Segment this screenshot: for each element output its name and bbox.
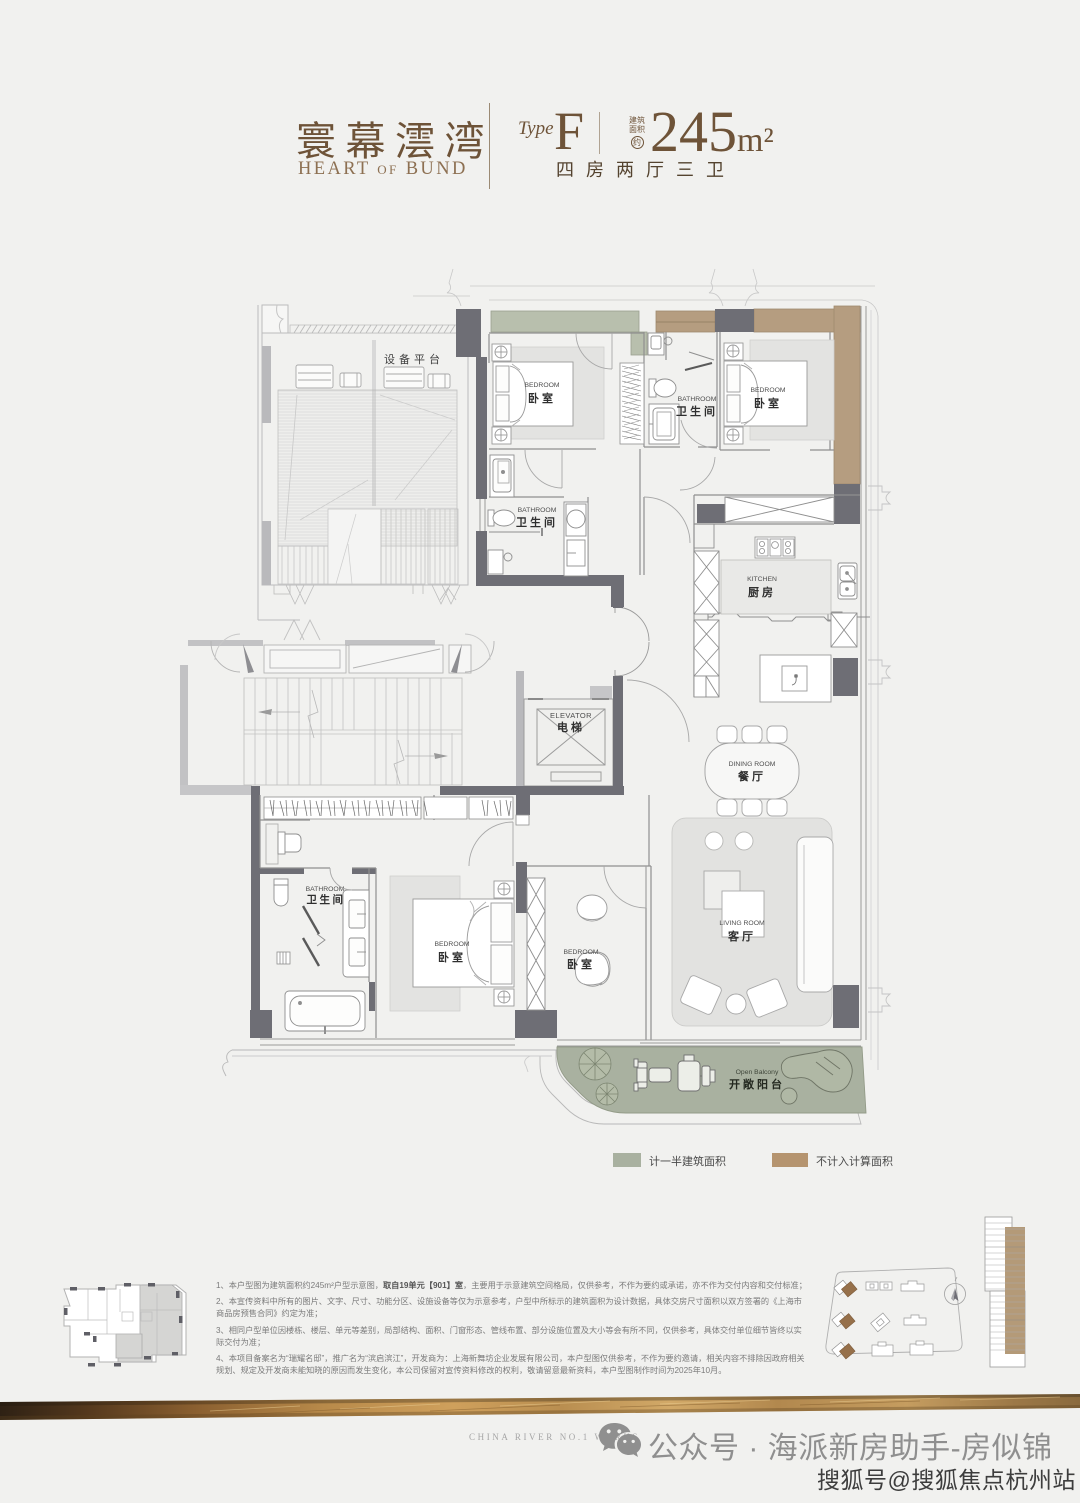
svg-text:Open Balcony: Open Balcony	[736, 1069, 779, 1076]
svg-text:卫生间: 卫生间	[516, 515, 558, 529]
svg-text:BATHROOM: BATHROOM	[518, 507, 557, 514]
svg-text:BEDROOM: BEDROOM	[750, 387, 785, 394]
svg-text:BEDROOM: BEDROOM	[563, 949, 598, 956]
svg-text:BATHROOM: BATHROOM	[678, 396, 717, 403]
svg-text:BEDROOM: BEDROOM	[524, 382, 559, 389]
svg-text:不计入计算面积: 不计入计算面积	[816, 1154, 893, 1168]
svg-text:BEDROOM: BEDROOM	[434, 941, 469, 948]
svg-text:BATHROOM: BATHROOM	[306, 886, 345, 893]
svg-text:LIVING ROOM: LIVING ROOM	[719, 920, 765, 927]
svg-text:卧室: 卧室	[438, 950, 466, 964]
svg-text:DINING ROOM: DINING ROOM	[729, 761, 776, 768]
svg-text:厨房: 厨房	[748, 585, 776, 599]
svg-text:客厅: 客厅	[727, 929, 756, 943]
svg-text:ELEVATOR: ELEVATOR	[550, 711, 592, 720]
svg-text:卧室: 卧室	[567, 957, 595, 971]
svg-text:电梯: 电梯	[557, 720, 585, 734]
svg-text:KITCHEN: KITCHEN	[747, 576, 777, 583]
svg-text:卫生间: 卫生间	[676, 404, 718, 418]
svg-text:设备平台: 设备平台	[384, 352, 444, 366]
svg-text:开敞阳台: 开敞阳台	[729, 1077, 785, 1091]
svg-text:计一半建筑面积: 计一半建筑面积	[649, 1154, 726, 1168]
svg-text:餐厅: 餐厅	[737, 769, 766, 783]
svg-text:卫生间: 卫生间	[307, 893, 346, 906]
svg-text:卧室: 卧室	[528, 391, 556, 405]
svg-text:卧室: 卧室	[754, 396, 782, 410]
